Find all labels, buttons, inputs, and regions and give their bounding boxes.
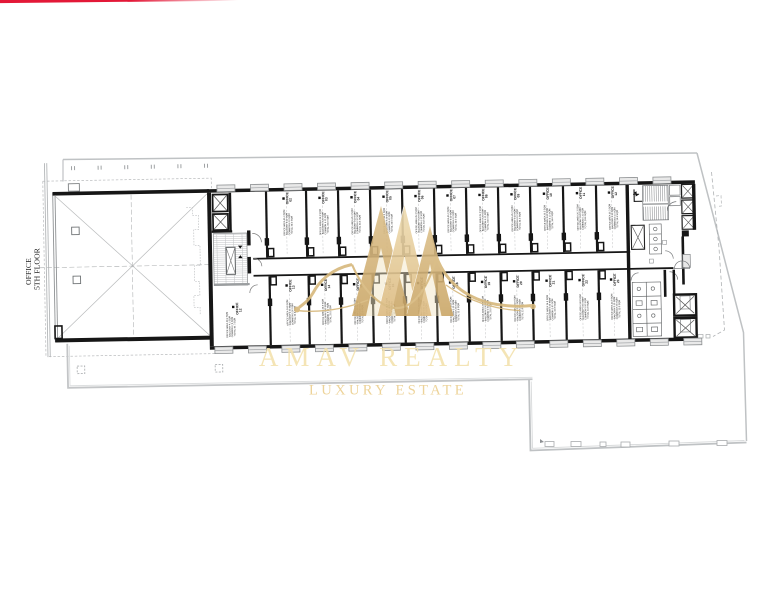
svg-text:TOTAL 34.6 SQM: TOTAL 34.6 SQM bbox=[518, 212, 521, 230]
svg-text:TOTAL 34.6 SQM: TOTAL 34.6 SQM bbox=[616, 210, 619, 228]
svg-text:TOTAL 49.7 SQM: TOTAL 49.7 SQM bbox=[233, 318, 236, 336]
svg-text:TOTAL 33.8 SQM: TOTAL 33.8 SQM bbox=[554, 301, 557, 319]
svg-text:TOTAL 33.8 SQM: TOTAL 33.8 SQM bbox=[457, 303, 460, 321]
svg-text:05: 05 bbox=[388, 196, 392, 200]
svg-text:5TH FLOOR: 5TH FLOOR bbox=[33, 247, 42, 290]
svg-text:TOTAL 34.6 SQM: TOTAL 34.6 SQM bbox=[486, 212, 489, 230]
svg-text:TOTAL 33.8 SQM: TOTAL 33.8 SQM bbox=[618, 300, 621, 318]
svg-text:TOTAL 34.6 SQM: TOTAL 34.6 SQM bbox=[326, 215, 329, 233]
svg-text:06: 06 bbox=[420, 195, 424, 199]
svg-text:21: 21 bbox=[552, 281, 556, 285]
svg-text:11: 11 bbox=[582, 193, 586, 197]
svg-text:08: 08 bbox=[484, 194, 488, 198]
svg-text:TOTAL 33.8 SQM: TOTAL 33.8 SQM bbox=[521, 302, 524, 320]
svg-text:TOTAL 33.8 SQM: TOTAL 33.8 SQM bbox=[329, 305, 332, 323]
svg-text:20: 20 bbox=[519, 281, 523, 285]
svg-text:LUXURY ESTATE: LUXURY ESTATE bbox=[309, 383, 467, 399]
svg-text:13: 13 bbox=[292, 285, 296, 289]
svg-text:TOTAL 34.6 SQM: TOTAL 34.6 SQM bbox=[584, 211, 587, 229]
svg-text:TOTAL 34.6 SQM: TOTAL 34.6 SQM bbox=[454, 213, 457, 231]
svg-text:09: 09 bbox=[516, 194, 520, 198]
svg-text:19: 19 bbox=[487, 282, 491, 286]
svg-text:04: 04 bbox=[356, 197, 360, 201]
svg-text:TOTAL 33.8 SQM: TOTAL 33.8 SQM bbox=[587, 301, 590, 319]
svg-text:23: 23 bbox=[616, 279, 620, 283]
svg-text:TOTAL 34.6 SQM: TOTAL 34.6 SQM bbox=[551, 211, 554, 229]
svg-text:AMAV REALTY: AMAV REALTY bbox=[259, 342, 525, 372]
svg-text:TOTAL 34.6 SQM: TOTAL 34.6 SQM bbox=[358, 215, 361, 233]
svg-text:14: 14 bbox=[327, 285, 331, 289]
svg-text:03: 03 bbox=[325, 197, 329, 201]
svg-text:02: 02 bbox=[289, 198, 293, 202]
svg-text:TOTAL 34.6 SQM: TOTAL 34.6 SQM bbox=[290, 216, 293, 234]
svg-text:TOTAL 34.6 SQM: TOTAL 34.6 SQM bbox=[390, 214, 393, 232]
svg-text:12: 12 bbox=[238, 308, 242, 312]
svg-text:10: 10 bbox=[549, 193, 553, 197]
svg-text:12: 12 bbox=[614, 192, 618, 196]
svg-text:22: 22 bbox=[585, 280, 589, 284]
svg-text:TOTAL 34.6 SQM: TOTAL 34.6 SQM bbox=[422, 214, 425, 232]
svg-text:07: 07 bbox=[452, 195, 456, 199]
